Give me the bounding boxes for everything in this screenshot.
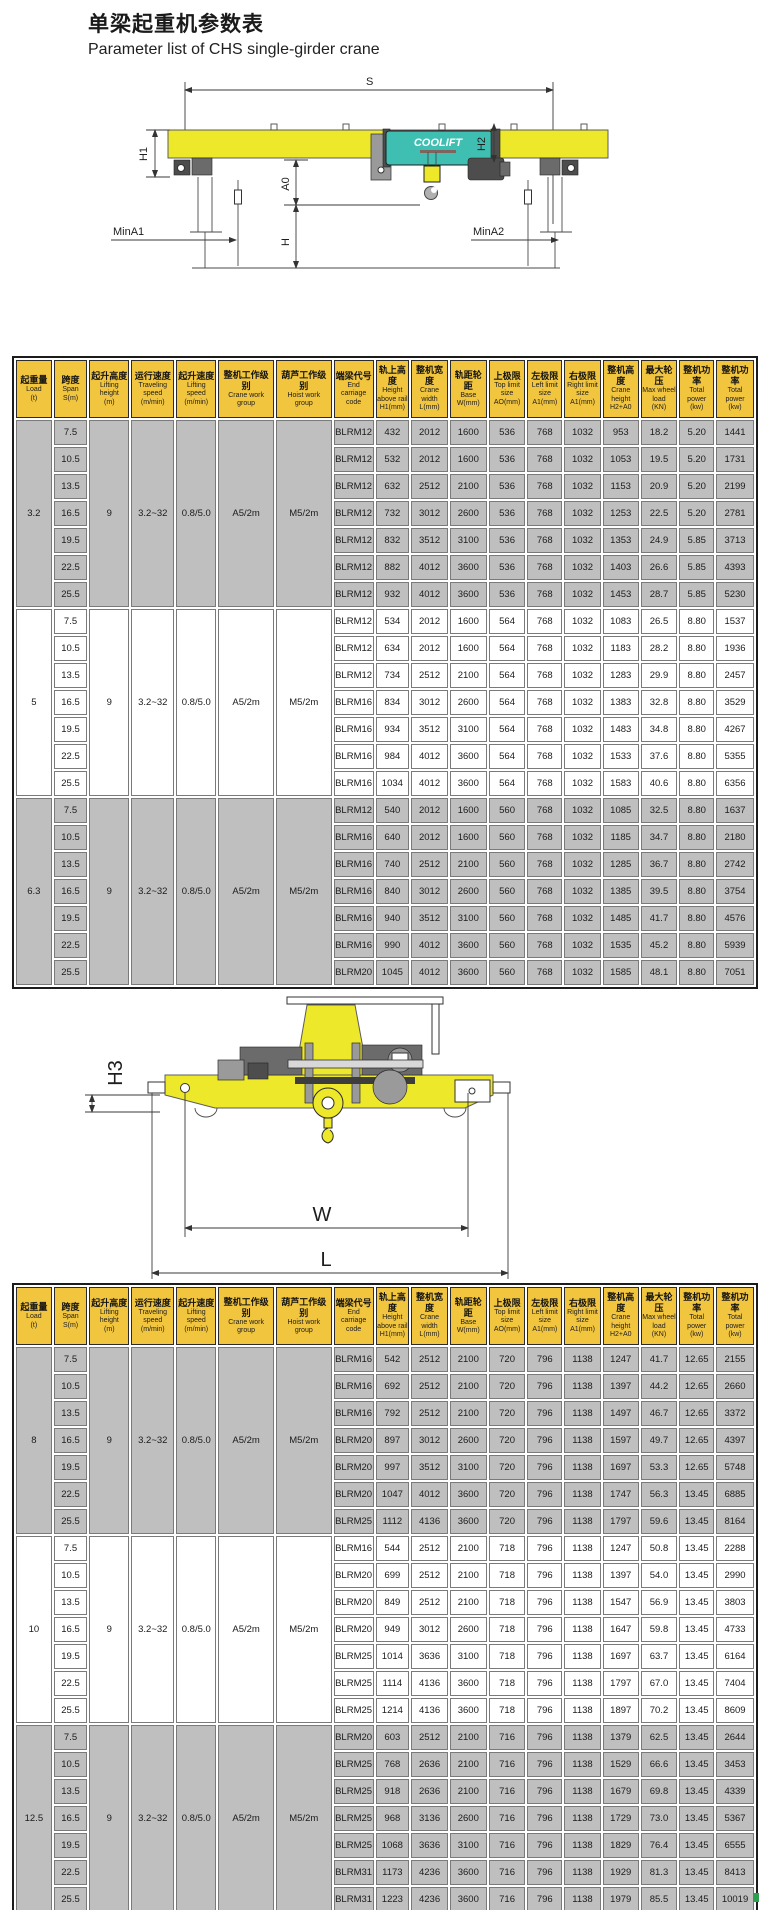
value-cell: 2636 bbox=[411, 1752, 448, 1777]
column-header: 起重量Load(t) bbox=[16, 360, 52, 418]
value-cell: 3600 bbox=[450, 1671, 487, 1696]
value-cell: 3600 bbox=[450, 1887, 487, 1910]
value-cell: 1747 bbox=[603, 1482, 639, 1507]
h3-label: H3 bbox=[105, 1060, 127, 1086]
value-cell: 3600 bbox=[450, 771, 487, 796]
h2-label: H2 bbox=[476, 137, 488, 151]
value-cell: BLRM31 bbox=[334, 1860, 374, 1885]
column-header: 端梁代号Endcarriagecode bbox=[334, 1287, 374, 1345]
value-cell: BLRM16 bbox=[334, 1374, 374, 1399]
value-cell: 768 bbox=[527, 501, 562, 526]
value-cell: 560 bbox=[489, 879, 526, 904]
value-cell: 3600 bbox=[450, 933, 487, 958]
parameter-table-1: 起重量Load(t)跨度SpanS(m)起升高度Liftingheight(m)… bbox=[14, 358, 756, 987]
min-a2-label: MinA2 bbox=[473, 226, 504, 238]
value-cell: 1032 bbox=[564, 636, 601, 661]
column-header: 整机功率Totalpower(kw) bbox=[679, 1287, 714, 1345]
value-cell: 5.85 bbox=[679, 528, 714, 553]
value-cell: 1485 bbox=[603, 906, 639, 931]
value-cell: 4733 bbox=[716, 1617, 754, 1642]
span-cell: 13.5 bbox=[54, 1779, 88, 1804]
value-cell: 69.8 bbox=[641, 1779, 678, 1804]
value-cell: 1403 bbox=[603, 555, 639, 580]
parameter-table-2: 起重量Load(t)跨度SpanS(m)起升高度Liftingheight(m)… bbox=[14, 1285, 756, 1910]
column-header: 运行速度Travelingspeed(m/min) bbox=[131, 1287, 174, 1345]
value-cell: 1483 bbox=[603, 717, 639, 742]
value-cell: 2512 bbox=[411, 1536, 448, 1561]
value-cell: 37.6 bbox=[641, 744, 678, 769]
value-cell: 768 bbox=[527, 420, 562, 445]
value-cell: 2512 bbox=[411, 1725, 448, 1750]
value-cell: 45.2 bbox=[641, 933, 678, 958]
value-cell: 792 bbox=[376, 1401, 410, 1426]
value-cell: 3600 bbox=[450, 555, 487, 580]
value-cell: 6356 bbox=[716, 771, 754, 796]
value-cell: 542 bbox=[376, 1347, 410, 1372]
value-cell: 560 bbox=[489, 798, 526, 823]
column-header: 左极限Left limitsizeA1(mm) bbox=[527, 1287, 562, 1345]
span-cell: 10.5 bbox=[54, 1752, 88, 1777]
common-spec-cell: 9 bbox=[89, 1536, 129, 1723]
value-cell: 13.45 bbox=[679, 1833, 714, 1858]
column-header: 轨距轮距BaseW(mm) bbox=[450, 1287, 487, 1345]
common-spec-cell: A5/2m bbox=[218, 420, 274, 607]
value-cell: 3012 bbox=[411, 1428, 448, 1453]
column-header: 右极限Right limitsizeA1(mm) bbox=[564, 1287, 601, 1345]
value-cell: 4012 bbox=[411, 771, 448, 796]
value-cell: 1138 bbox=[564, 1536, 601, 1561]
value-cell: 1600 bbox=[450, 798, 487, 823]
value-cell: 13.45 bbox=[679, 1779, 714, 1804]
value-cell: 50.8 bbox=[641, 1536, 678, 1561]
rope-drum bbox=[373, 1070, 407, 1104]
value-cell: 4012 bbox=[411, 1482, 448, 1507]
value-cell: 5.20 bbox=[679, 447, 714, 472]
header-row: 起重量Load(t)跨度SpanS(m)起升高度Liftingheight(m)… bbox=[16, 1287, 754, 1345]
common-spec-cell: A5/2m bbox=[218, 798, 274, 985]
table-row: 12.57.593.2~320.8/5.0A5/2mM5/2mBLRM20603… bbox=[16, 1725, 754, 1750]
value-cell: 2100 bbox=[450, 1401, 487, 1426]
value-cell: 6164 bbox=[716, 1644, 754, 1669]
value-cell: 2512 bbox=[411, 1563, 448, 1588]
value-cell: 3012 bbox=[411, 1617, 448, 1642]
value-cell: 13.45 bbox=[679, 1509, 714, 1534]
common-spec-cell: M5/2m bbox=[276, 1536, 332, 1723]
value-cell: 12.65 bbox=[679, 1455, 714, 1480]
column-header: 起升速度Liftingspeed(m/min) bbox=[176, 1287, 216, 1345]
right-rail-stub bbox=[493, 1082, 510, 1093]
value-cell: 718 bbox=[489, 1644, 526, 1669]
value-cell: 2100 bbox=[450, 663, 487, 688]
value-cell: 4012 bbox=[411, 555, 448, 580]
value-cell: 882 bbox=[376, 555, 410, 580]
value-cell: 1138 bbox=[564, 1428, 601, 1453]
value-cell: 716 bbox=[489, 1752, 526, 1777]
span-cell: 13.5 bbox=[54, 663, 88, 688]
right-end-truck bbox=[540, 158, 578, 175]
value-cell: 2512 bbox=[411, 852, 448, 877]
value-cell: BLRM12 bbox=[334, 528, 374, 553]
value-cell: 2100 bbox=[450, 1779, 487, 1804]
value-cell: 1138 bbox=[564, 1752, 601, 1777]
span-cell: 16.5 bbox=[54, 879, 88, 904]
value-cell: 4012 bbox=[411, 933, 448, 958]
h-label: H bbox=[280, 238, 292, 246]
value-cell: 1138 bbox=[564, 1806, 601, 1831]
span-cell: 7.5 bbox=[54, 1347, 88, 1372]
value-cell: 4339 bbox=[716, 1779, 754, 1804]
value-cell: 5.20 bbox=[679, 501, 714, 526]
span-cell: 25.5 bbox=[54, 1887, 88, 1910]
value-cell: 5355 bbox=[716, 744, 754, 769]
value-cell: 2012 bbox=[411, 825, 448, 850]
crane-front-view-svg: S H1 bbox=[0, 72, 766, 300]
column-header: 轨上高度Heightabove railH1(mm) bbox=[376, 360, 410, 418]
value-cell: 2012 bbox=[411, 420, 448, 445]
value-cell: 536 bbox=[489, 447, 526, 472]
value-cell: 5.85 bbox=[679, 582, 714, 607]
value-cell: 1537 bbox=[716, 609, 754, 634]
value-cell: 2100 bbox=[450, 474, 487, 499]
value-cell: 5748 bbox=[716, 1455, 754, 1480]
value-cell: 53.3 bbox=[641, 1455, 678, 1480]
value-cell: 8609 bbox=[716, 1698, 754, 1723]
value-cell: 4136 bbox=[411, 1698, 448, 1723]
value-cell: 5.20 bbox=[679, 420, 714, 445]
common-spec-cell: 3.2~32 bbox=[131, 798, 174, 985]
value-cell: 1497 bbox=[603, 1401, 639, 1426]
value-cell: 36.7 bbox=[641, 852, 678, 877]
value-cell: 990 bbox=[376, 933, 410, 958]
value-cell: 2100 bbox=[450, 1536, 487, 1561]
value-cell: 12.65 bbox=[679, 1401, 714, 1426]
value-cell: 1138 bbox=[564, 1698, 601, 1723]
span-cell: 25.5 bbox=[54, 960, 88, 985]
value-cell: BLRM25 bbox=[334, 1806, 374, 1831]
value-cell: 544 bbox=[376, 1536, 410, 1561]
value-cell: 796 bbox=[527, 1563, 562, 1588]
value-cell: 13.45 bbox=[679, 1698, 714, 1723]
value-cell: 1032 bbox=[564, 717, 601, 742]
value-cell: BLRM16 bbox=[334, 690, 374, 715]
value-cell: 2644 bbox=[716, 1725, 754, 1750]
value-cell: 692 bbox=[376, 1374, 410, 1399]
value-cell: 13.45 bbox=[679, 1725, 714, 1750]
span-cell: 10.5 bbox=[54, 1374, 88, 1399]
value-cell: 41.7 bbox=[641, 906, 678, 931]
value-cell: 1600 bbox=[450, 420, 487, 445]
value-cell: 1032 bbox=[564, 825, 601, 850]
dimension-h1: H1 bbox=[138, 130, 170, 177]
value-cell: 32.5 bbox=[641, 798, 678, 823]
column-header: 整机工作级别Crane workgroup bbox=[218, 360, 274, 418]
span-cell: 7.5 bbox=[54, 798, 88, 823]
value-cell: 1138 bbox=[564, 1617, 601, 1642]
value-cell: 3372 bbox=[716, 1401, 754, 1426]
value-cell: 849 bbox=[376, 1590, 410, 1615]
value-cell: 640 bbox=[376, 825, 410, 850]
value-cell: 3512 bbox=[411, 528, 448, 553]
value-cell: 796 bbox=[527, 1644, 562, 1669]
value-cell: 720 bbox=[489, 1509, 526, 1534]
value-cell: 1032 bbox=[564, 555, 601, 580]
left-wheel-flange bbox=[195, 1108, 217, 1117]
value-cell: 1138 bbox=[564, 1725, 601, 1750]
value-cell: 768 bbox=[527, 528, 562, 553]
value-cell: 1797 bbox=[603, 1509, 639, 1534]
value-cell: 1897 bbox=[603, 1698, 639, 1723]
span-cell: 16.5 bbox=[54, 501, 88, 526]
value-cell: 12.65 bbox=[679, 1347, 714, 1372]
load-cell: 8 bbox=[16, 1347, 52, 1534]
column-header: 整机功率Totalpower(kw) bbox=[716, 1287, 754, 1345]
value-cell: 5939 bbox=[716, 933, 754, 958]
column-header: 左极限Left limitsizeA1(mm) bbox=[527, 360, 562, 418]
value-cell: 1032 bbox=[564, 528, 601, 553]
value-cell: 2990 bbox=[716, 1563, 754, 1588]
column-header: 最大轮压Max wheelload(KN) bbox=[641, 1287, 678, 1345]
value-cell: 1138 bbox=[564, 1509, 601, 1534]
value-cell: 1183 bbox=[603, 636, 639, 661]
value-cell: 8.80 bbox=[679, 852, 714, 877]
value-cell: 768 bbox=[527, 771, 562, 796]
value-cell: 532 bbox=[376, 447, 410, 472]
value-cell: BLRM16 bbox=[334, 1347, 374, 1372]
value-cell: 1247 bbox=[603, 1347, 639, 1372]
value-cell: 2012 bbox=[411, 609, 448, 634]
value-cell: 22.5 bbox=[641, 501, 678, 526]
value-cell: 8.80 bbox=[679, 744, 714, 769]
scan-artifact-mark bbox=[753, 1893, 759, 1902]
value-cell: 1637 bbox=[716, 798, 754, 823]
span-cell: 10.5 bbox=[54, 825, 88, 850]
value-cell: BLRM25 bbox=[334, 1833, 374, 1858]
value-cell: 796 bbox=[527, 1806, 562, 1831]
value-cell: 796 bbox=[527, 1590, 562, 1615]
value-cell: 1045 bbox=[376, 960, 410, 985]
value-cell: 1114 bbox=[376, 1671, 410, 1696]
parameter-table-2-wrap: 起重量Load(t)跨度SpanS(m)起升高度Liftingheight(m)… bbox=[12, 1283, 758, 1910]
value-cell: 768 bbox=[527, 609, 562, 634]
span-cell: 16.5 bbox=[54, 1428, 88, 1453]
value-cell: 13.45 bbox=[679, 1482, 714, 1507]
value-cell: 768 bbox=[527, 744, 562, 769]
value-cell: BLRM12 bbox=[334, 663, 374, 688]
value-cell: 832 bbox=[376, 528, 410, 553]
value-cell: 1032 bbox=[564, 852, 601, 877]
value-cell: 968 bbox=[376, 1806, 410, 1831]
common-spec-cell: 3.2~32 bbox=[131, 1725, 174, 1910]
value-cell: 1085 bbox=[603, 798, 639, 823]
column-header: 轨距轮距BaseW(mm) bbox=[450, 360, 487, 418]
value-cell: 3600 bbox=[450, 1509, 487, 1534]
column-header: 葫芦工作级别Hoist workgroup bbox=[276, 360, 332, 418]
value-cell: 768 bbox=[527, 879, 562, 904]
value-cell: BLRM25 bbox=[334, 1671, 374, 1696]
column-header: 整机高度CraneheightH2+A0 bbox=[603, 1287, 639, 1345]
value-cell: 34.7 bbox=[641, 825, 678, 850]
value-cell: 1034 bbox=[376, 771, 410, 796]
value-cell: 564 bbox=[489, 717, 526, 742]
value-cell: 560 bbox=[489, 906, 526, 931]
value-cell: 1697 bbox=[603, 1455, 639, 1480]
value-cell: 2600 bbox=[450, 501, 487, 526]
value-cell: 59.6 bbox=[641, 1509, 678, 1534]
value-cell: 4397 bbox=[716, 1428, 754, 1453]
value-cell: 536 bbox=[489, 501, 526, 526]
value-cell: 70.2 bbox=[641, 1698, 678, 1723]
value-cell: 934 bbox=[376, 717, 410, 742]
value-cell: 85.5 bbox=[641, 1887, 678, 1910]
value-cell: 1253 bbox=[603, 501, 639, 526]
common-spec-cell: 9 bbox=[89, 1725, 129, 1910]
value-cell: 3529 bbox=[716, 690, 754, 715]
common-spec-cell: 0.8/5.0 bbox=[176, 420, 216, 607]
span-cell: 7.5 bbox=[54, 609, 88, 634]
value-cell: 7051 bbox=[716, 960, 754, 985]
value-cell: 8.80 bbox=[679, 636, 714, 661]
value-cell: 796 bbox=[527, 1617, 562, 1642]
value-cell: BLRM16 bbox=[334, 1536, 374, 1561]
value-cell: 796 bbox=[527, 1860, 562, 1885]
value-cell: 2100 bbox=[450, 1347, 487, 1372]
value-cell: 1032 bbox=[564, 501, 601, 526]
value-cell: 8.80 bbox=[679, 933, 714, 958]
common-spec-cell: M5/2m bbox=[276, 1725, 332, 1910]
hook-block bbox=[424, 166, 440, 182]
value-cell: 13.45 bbox=[679, 1590, 714, 1615]
value-cell: 2199 bbox=[716, 474, 754, 499]
value-cell: 2155 bbox=[716, 1347, 754, 1372]
value-cell: 768 bbox=[527, 636, 562, 661]
span-cell: 22.5 bbox=[54, 1860, 88, 1885]
value-cell: 13.45 bbox=[679, 1536, 714, 1561]
column-header: 整机宽度CranewidthL(mm) bbox=[411, 360, 448, 418]
value-cell: 2180 bbox=[716, 825, 754, 850]
value-cell: 796 bbox=[527, 1698, 562, 1723]
value-cell: 56.3 bbox=[641, 1482, 678, 1507]
value-cell: BLRM12 bbox=[334, 420, 374, 445]
value-cell: 1585 bbox=[603, 960, 639, 985]
value-cell: 1138 bbox=[564, 1644, 601, 1669]
value-cell: 1032 bbox=[564, 447, 601, 472]
value-cell: 40.6 bbox=[641, 771, 678, 796]
value-cell: 1032 bbox=[564, 933, 601, 958]
span-cell: 25.5 bbox=[54, 1698, 88, 1723]
value-cell: 2742 bbox=[716, 852, 754, 877]
value-cell: 1353 bbox=[603, 528, 639, 553]
value-cell: 2512 bbox=[411, 1347, 448, 1372]
value-cell: 796 bbox=[527, 1374, 562, 1399]
value-cell: 1600 bbox=[450, 447, 487, 472]
value-cell: 46.7 bbox=[641, 1401, 678, 1426]
header-row: 起重量Load(t)跨度SpanS(m)起升高度Liftingheight(m)… bbox=[16, 360, 754, 418]
value-cell: 720 bbox=[489, 1455, 526, 1480]
value-cell: 8.80 bbox=[679, 798, 714, 823]
value-cell: 432 bbox=[376, 420, 410, 445]
value-cell: 2100 bbox=[450, 1563, 487, 1588]
value-cell: 718 bbox=[489, 1671, 526, 1696]
span-cell: 19.5 bbox=[54, 1455, 88, 1480]
value-cell: 1397 bbox=[603, 1563, 639, 1588]
value-cell: 56.9 bbox=[641, 1590, 678, 1615]
value-cell: BLRM20 bbox=[334, 1725, 374, 1750]
common-spec-cell: 3.2~32 bbox=[131, 609, 174, 796]
value-cell: 1535 bbox=[603, 933, 639, 958]
dimension-a0: A0 bbox=[280, 160, 420, 205]
span-cell: 16.5 bbox=[54, 1617, 88, 1642]
value-cell: 3600 bbox=[450, 1698, 487, 1723]
span-cell: 7.5 bbox=[54, 1536, 88, 1561]
value-cell: 73.0 bbox=[641, 1806, 678, 1831]
column-header: 端梁代号Endcarriagecode bbox=[334, 360, 374, 418]
value-cell: 3100 bbox=[450, 717, 487, 742]
value-cell: 949 bbox=[376, 1617, 410, 1642]
value-cell: 3100 bbox=[450, 1644, 487, 1669]
value-cell: 2781 bbox=[716, 501, 754, 526]
value-cell: 768 bbox=[527, 474, 562, 499]
value-cell: 13.45 bbox=[679, 1806, 714, 1831]
value-cell: 796 bbox=[527, 1887, 562, 1910]
value-cell: 734 bbox=[376, 663, 410, 688]
value-cell: 1112 bbox=[376, 1509, 410, 1534]
value-cell: 3100 bbox=[450, 1833, 487, 1858]
value-cell: 44.2 bbox=[641, 1374, 678, 1399]
span-cell: 7.5 bbox=[54, 1725, 88, 1750]
a0-label: A0 bbox=[280, 177, 292, 190]
value-cell: 768 bbox=[527, 717, 562, 742]
value-cell: 8164 bbox=[716, 1509, 754, 1534]
value-cell: 3600 bbox=[450, 744, 487, 769]
value-cell: BLRM20 bbox=[334, 1428, 374, 1453]
value-cell: 3636 bbox=[411, 1644, 448, 1669]
value-cell: 1138 bbox=[564, 1671, 601, 1696]
span-cell: 22.5 bbox=[54, 555, 88, 580]
column-header: 整机工作级别Crane workgroup bbox=[218, 1287, 274, 1345]
value-cell: 4236 bbox=[411, 1860, 448, 1885]
value-cell: 4267 bbox=[716, 717, 754, 742]
value-cell: 3803 bbox=[716, 1590, 754, 1615]
value-cell: 768 bbox=[527, 798, 562, 823]
value-cell: 632 bbox=[376, 474, 410, 499]
value-cell: 3012 bbox=[411, 501, 448, 526]
value-cell: 564 bbox=[489, 663, 526, 688]
value-cell: 953 bbox=[603, 420, 639, 445]
value-cell: 536 bbox=[489, 474, 526, 499]
value-cell: 4012 bbox=[411, 582, 448, 607]
value-cell: 1600 bbox=[450, 609, 487, 634]
value-cell: 536 bbox=[489, 555, 526, 580]
value-cell: 8.80 bbox=[679, 906, 714, 931]
value-cell: 3600 bbox=[450, 582, 487, 607]
value-cell: 897 bbox=[376, 1428, 410, 1453]
h1-label: H1 bbox=[138, 147, 150, 161]
column-header: 最大轮压Max wheelload(KN) bbox=[641, 360, 678, 418]
value-cell: 29.9 bbox=[641, 663, 678, 688]
value-cell: BLRM12 bbox=[334, 447, 374, 472]
value-cell: BLRM12 bbox=[334, 474, 374, 499]
value-cell: 1383 bbox=[603, 690, 639, 715]
dimension-min-a2: MinA2 bbox=[471, 226, 558, 240]
value-cell: BLRM12 bbox=[334, 636, 374, 661]
common-spec-cell: 9 bbox=[89, 420, 129, 607]
value-cell: 1032 bbox=[564, 906, 601, 931]
value-cell: 718 bbox=[489, 1590, 526, 1615]
value-cell: 1214 bbox=[376, 1698, 410, 1723]
page-title-en: Parameter list of CHS single-girder cran… bbox=[88, 41, 380, 59]
table-row: 107.593.2~320.8/5.0A5/2mM5/2mBLRM1654425… bbox=[16, 1536, 754, 1561]
column-header: 跨度SpanS(m) bbox=[54, 1287, 88, 1345]
